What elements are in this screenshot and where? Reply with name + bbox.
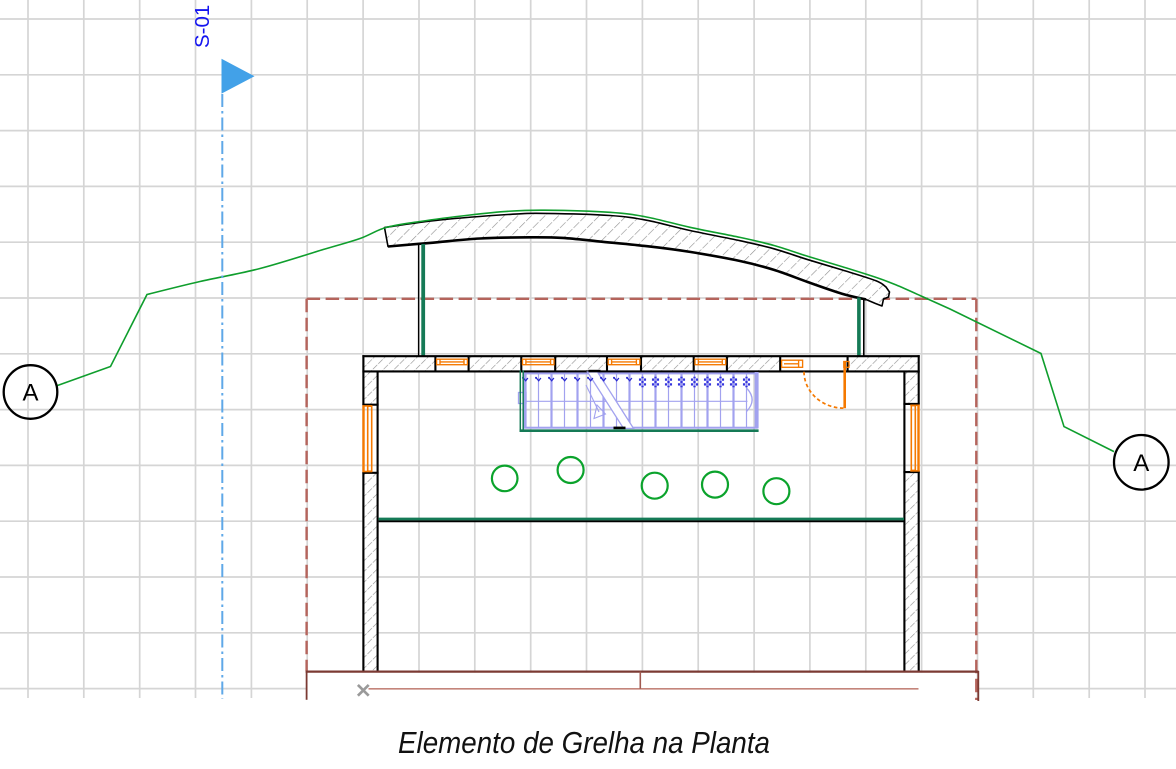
svg-text:A: A [1133,450,1149,477]
svg-text:Elemento de Grelha na Planta: Elemento de Grelha na Planta [398,725,770,760]
svg-text:A: A [22,380,38,407]
svg-text:S-01: S-01 [191,5,214,48]
